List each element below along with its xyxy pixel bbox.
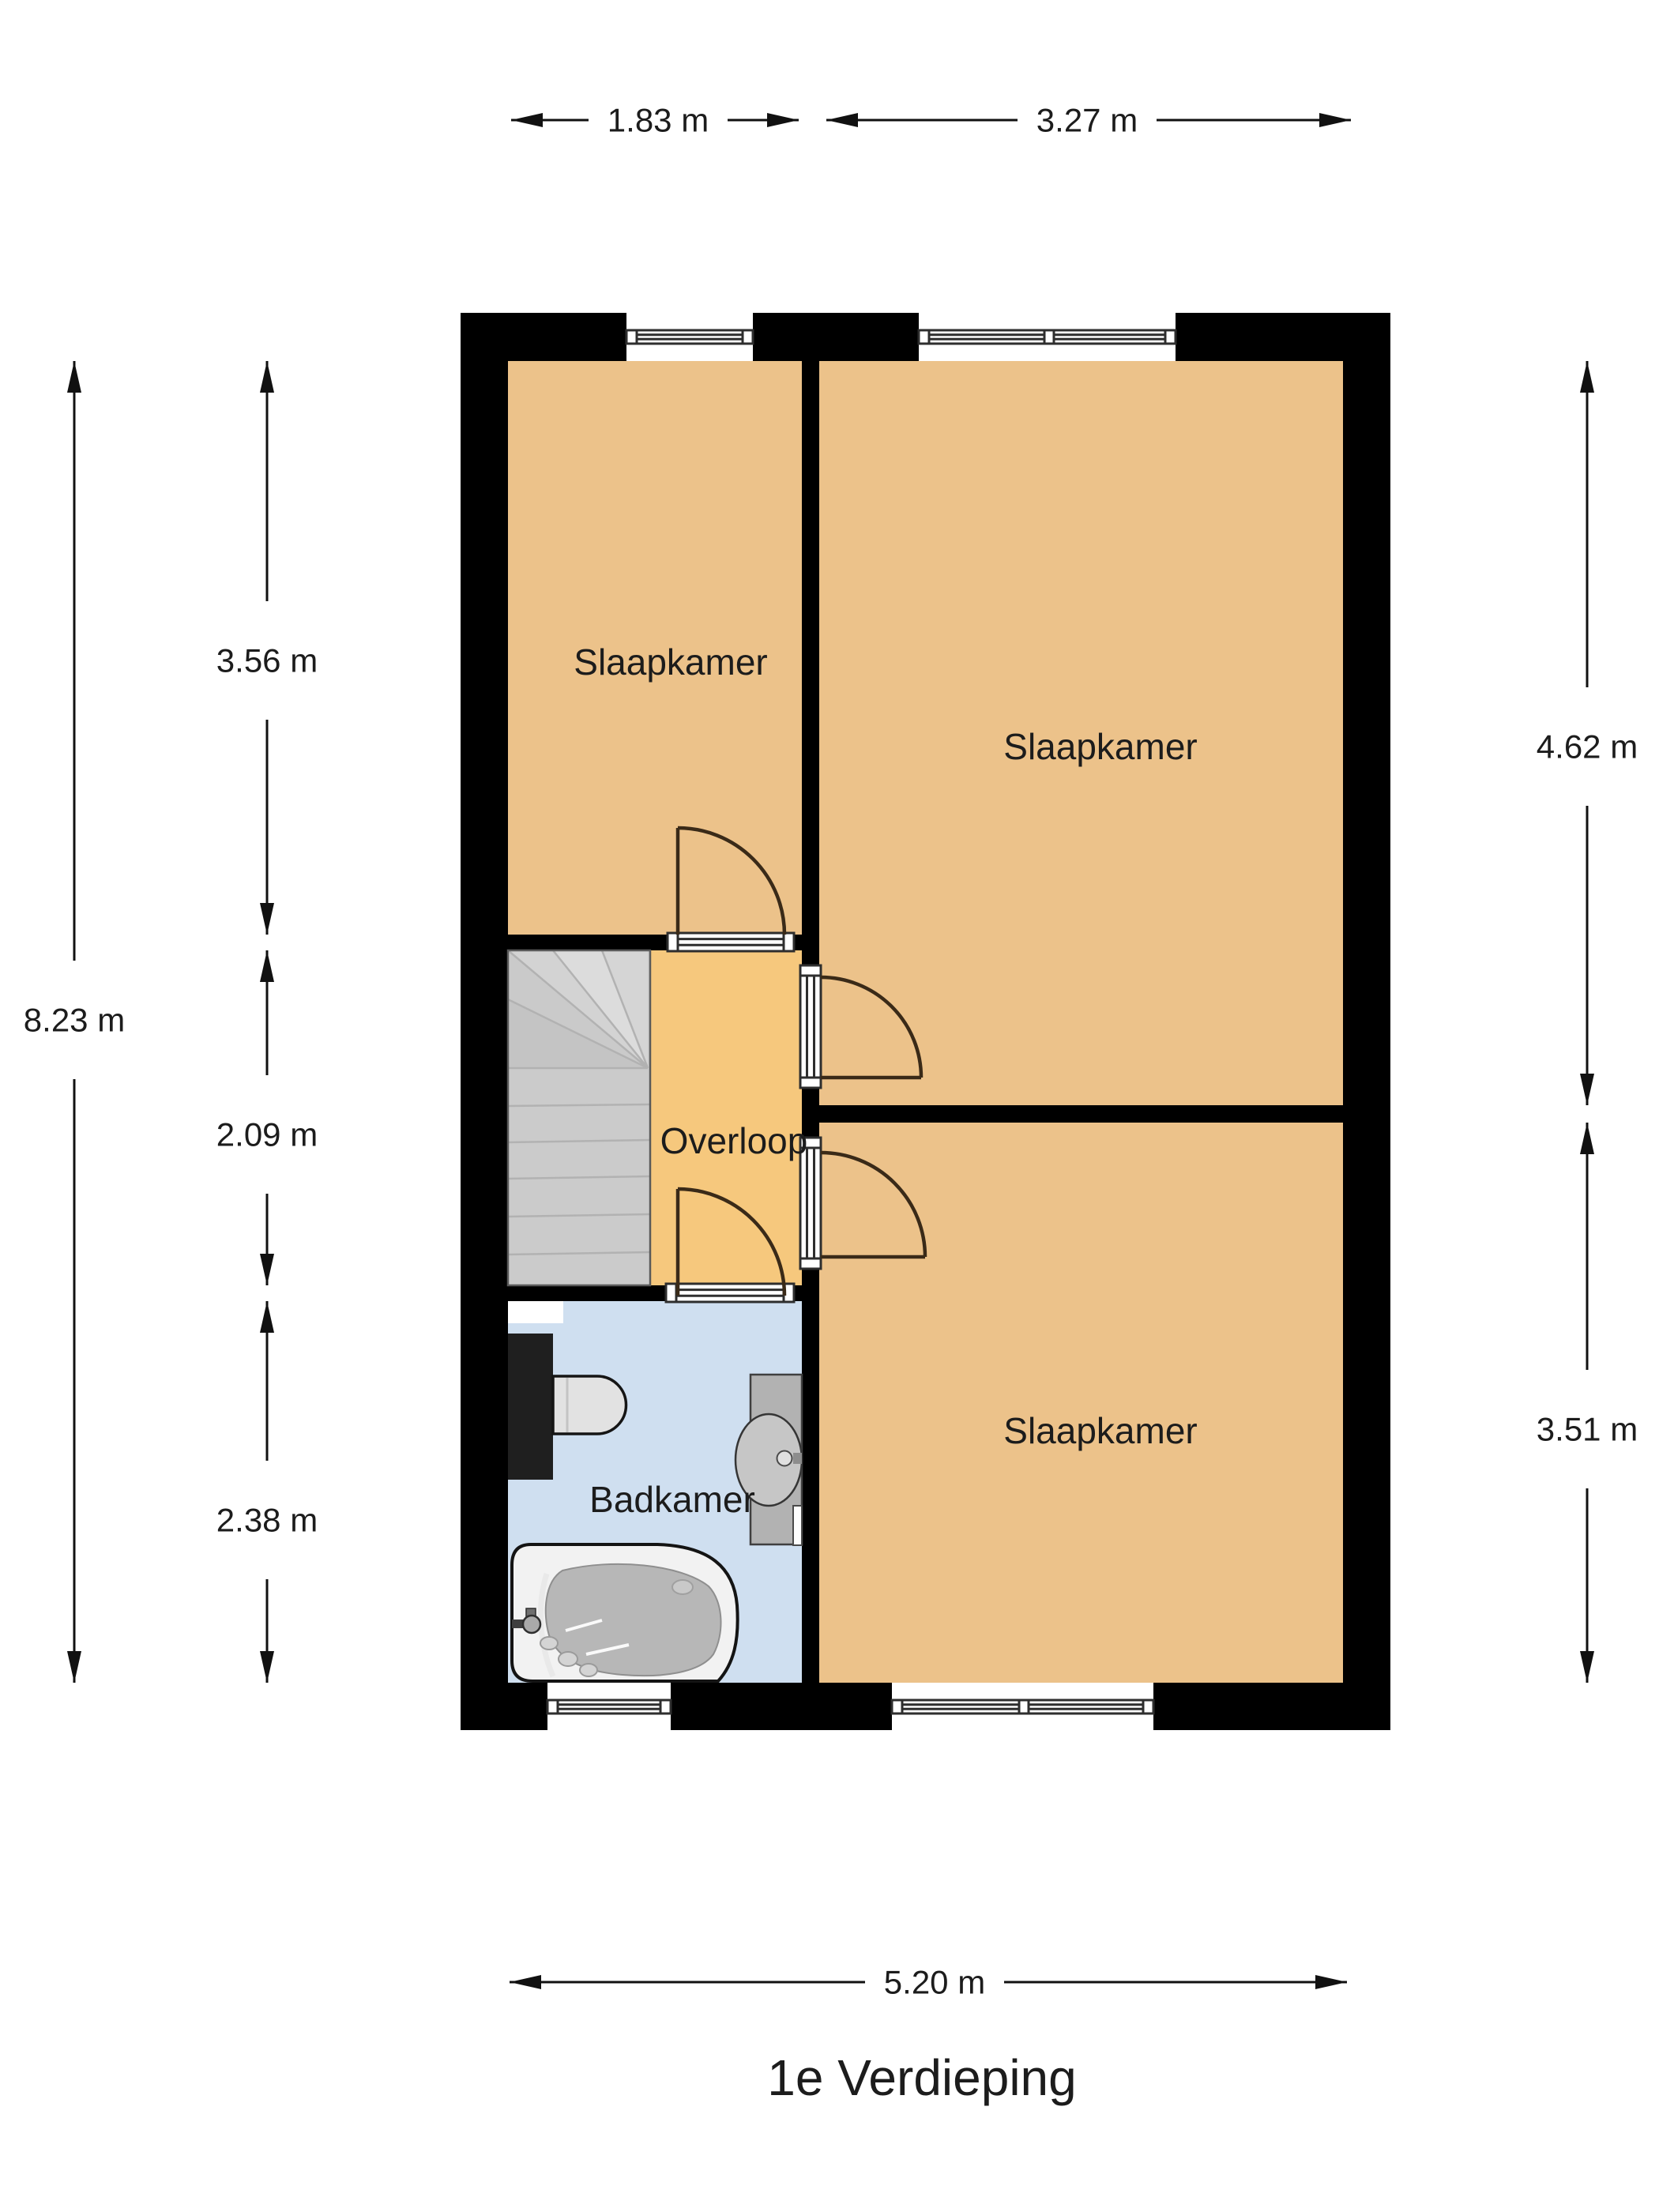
arrow-left-icon: [510, 1975, 541, 1989]
arrow-down-icon: [1580, 1074, 1594, 1105]
dimension-room-tr-height: 4.62 m: [1537, 361, 1638, 1105]
dimension-room-tl-height: 3.56 m: [216, 361, 318, 935]
dimension-overloop-height: 2.09 m: [216, 950, 318, 1285]
room-floor-slaapkamer-br: [819, 1123, 1343, 1683]
page-title: 1e Verdieping: [767, 2049, 1076, 2106]
dimension-label: 2.38 m: [216, 1502, 318, 1539]
dimension-label: 4.62 m: [1537, 728, 1638, 766]
door-threshold-badkamer: [666, 1284, 794, 1302]
dimension-label: 3.56 m: [216, 642, 318, 679]
dimension-total-width: 5.20 m: [510, 1964, 1347, 2001]
stairs-icon: [508, 950, 650, 1285]
dimension-label: 8.23 m: [24, 1002, 125, 1039]
room-label-overloop: Overloop: [660, 1120, 808, 1161]
window-icon-top-right: [919, 330, 1176, 344]
arrow-right-icon: [1315, 1975, 1347, 1989]
room-floor-overloop: [650, 950, 802, 1285]
bathtub-icon: [512, 1544, 738, 1681]
arrow-down-icon: [1580, 1651, 1594, 1683]
dimension-top-left-width: 1.83 m: [511, 102, 799, 139]
arrow-right-icon: [1319, 113, 1351, 127]
arrow-right-icon: [767, 113, 799, 127]
dimension-label: 3.27 m: [1036, 102, 1138, 139]
arrow-up-icon: [260, 361, 274, 393]
arrow-up-icon: [67, 361, 81, 393]
room-label-slaapkamer-tr: Slaapkamer: [1003, 726, 1197, 767]
arrow-up-icon: [1580, 361, 1594, 393]
dimension-label: 2.09 m: [216, 1116, 318, 1153]
room-label-slaapkamer-tl: Slaapkamer: [574, 641, 767, 683]
arrow-down-icon: [260, 1651, 274, 1683]
door-threshold-slaapkamer-tr: [800, 965, 821, 1088]
room-label-badkamer: Badkamer: [589, 1479, 755, 1520]
window-icon-top-left: [626, 330, 753, 344]
window-icon-bottom-right: [892, 1700, 1153, 1714]
arrow-up-icon: [260, 1301, 274, 1333]
arrow-up-icon: [1580, 1123, 1594, 1154]
dimension-total-height: 8.23 m: [24, 361, 125, 1683]
arrow-up-icon: [260, 950, 274, 982]
door-threshold-slaapkamer-tl: [668, 933, 794, 951]
room-label-slaapkamer-br: Slaapkamer: [1003, 1410, 1197, 1451]
arrow-left-icon: [826, 113, 858, 127]
interior-wall-between-right-bedrooms: [819, 1105, 1343, 1123]
arrow-down-icon: [260, 903, 274, 935]
arrow-down-icon: [260, 1254, 274, 1285]
dimension-room-br-height: 3.51 m: [1537, 1123, 1638, 1683]
dimension-top-right-width: 3.27 m: [826, 102, 1351, 139]
dimension-badkamer-height: 2.38 m: [216, 1301, 318, 1683]
dimension-label: 5.20 m: [884, 1964, 985, 2001]
window-icon-bottom-left: [547, 1700, 671, 1714]
arrow-left-icon: [511, 113, 543, 127]
dimension-label: 3.51 m: [1537, 1411, 1638, 1448]
dimension-label: 1.83 m: [608, 102, 709, 139]
floor-plan-canvas: Slaapkamer Slaapkamer Slaapkamer Overloo…: [0, 0, 1659, 2212]
floor-plan-page: Slaapkamer Slaapkamer Slaapkamer Overloo…: [0, 0, 1659, 2212]
arrow-down-icon: [67, 1651, 81, 1683]
bathroom-niche: [508, 1301, 563, 1323]
